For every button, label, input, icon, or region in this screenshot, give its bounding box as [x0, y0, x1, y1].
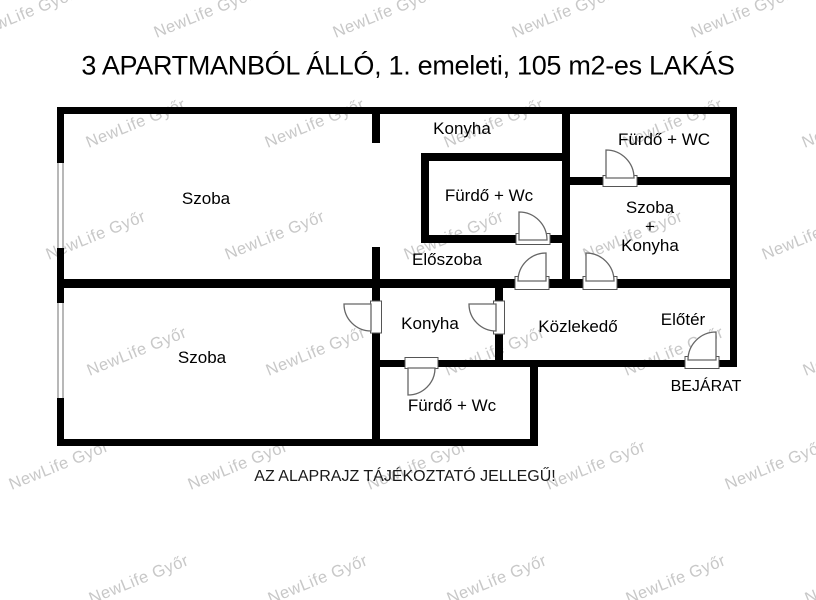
- watermark-text: NewLife Győr: [263, 323, 368, 380]
- wall-lower-furdo-right: [530, 360, 538, 446]
- watermark-text: NewLife Győr: [262, 95, 367, 152]
- watermark-text: NewLife Győr: [265, 551, 370, 600]
- wall-lower-konyha-right: [495, 287, 503, 367]
- room-label-szoba-top: Szoba: [182, 189, 230, 209]
- watermark-text: NewLife Győr: [151, 0, 256, 43]
- room-label-furdo-mid: Fürdő + Wc: [445, 186, 533, 206]
- room-label-eloszoba: Előszoba: [412, 250, 482, 270]
- wall-outer-left: [57, 107, 64, 446]
- watermark-text: NewLife Győr: [800, 323, 816, 380]
- watermark-text: NewLife Győr: [222, 207, 327, 264]
- room-label-eloter: Előtér: [661, 310, 705, 330]
- room-label-szoba-bottom: Szoba: [178, 348, 226, 368]
- watermark-text: NewLife Győr: [621, 323, 726, 380]
- floor-plan-page: NewLife GyőrNewLife GyőrNewLife GyőrNewL…: [0, 0, 816, 600]
- room-label-kozlekedo: Közlekedő: [538, 317, 617, 337]
- room-label-szoba-konyha-line2: +: [645, 217, 655, 237]
- wall-furdobox-top: [421, 153, 565, 161]
- room-label-konyha-top: Konyha: [433, 119, 491, 139]
- wall-furdobox-bottom: [421, 235, 565, 243]
- disclaimer-text: AZ ALAPRAJZ TÁJÉKOZTATÓ JELLEGŰ!: [254, 468, 555, 486]
- watermark-text: NewLife Győr: [759, 207, 816, 264]
- wall-konyha-right: [562, 107, 570, 287]
- wall-szoba-konyha-top: [372, 107, 380, 143]
- watermark-layer: NewLife GyőrNewLife GyőrNewLife GyőrNewL…: [0, 0, 816, 600]
- watermark-text: NewLife Győr: [0, 0, 78, 43]
- watermark-text: NewLife Győr: [444, 551, 549, 600]
- watermark-text: NewLife Győr: [330, 0, 435, 43]
- watermark-text: NewLife Győr: [83, 95, 188, 152]
- watermark-text: NewLife Győr: [802, 551, 816, 600]
- wall-outer-top: [57, 107, 737, 114]
- wall-outer-bottom-left: [57, 439, 538, 446]
- wall-furdo-wc-divider: [562, 177, 737, 185]
- watermark-text: NewLife Győr: [543, 437, 648, 494]
- wall-lower-furdo-top: [372, 360, 538, 367]
- watermark-text: NewLife Győr: [688, 0, 793, 43]
- wall-furdobox-left: [421, 153, 429, 243]
- page-title: 3 APARTMANBÓL ÁLLÓ, 1. emeleti, 105 m2-e…: [81, 51, 734, 82]
- wall-outer-right: [730, 107, 737, 367]
- room-label-furdo-topright: Fürdő + WC: [618, 130, 710, 150]
- watermark-text: NewLife Győr: [722, 437, 816, 494]
- room-label-szoba-konyha-line1: Szoba: [626, 198, 674, 218]
- wall-corridor-bottom: [535, 360, 737, 367]
- room-label-szoba-konyha-line3: Konyha: [621, 236, 679, 256]
- watermark-text: NewLife Győr: [86, 551, 191, 600]
- watermark-text: NewLife Győr: [509, 0, 614, 43]
- watermark-text: NewLife Győr: [84, 323, 189, 380]
- wall-szoba-konyha-bottom: [372, 247, 380, 287]
- watermark-text: NewLife Győr: [799, 95, 816, 152]
- wall-mid-divider: [57, 279, 737, 288]
- room-label-furdo-bottom: Fürdő + Wc: [408, 396, 496, 416]
- room-label-konyha-bottom: Konyha: [401, 314, 459, 334]
- entrance-label: BEJÁRAT: [671, 378, 742, 396]
- watermark-text: NewLife Győr: [623, 551, 728, 600]
